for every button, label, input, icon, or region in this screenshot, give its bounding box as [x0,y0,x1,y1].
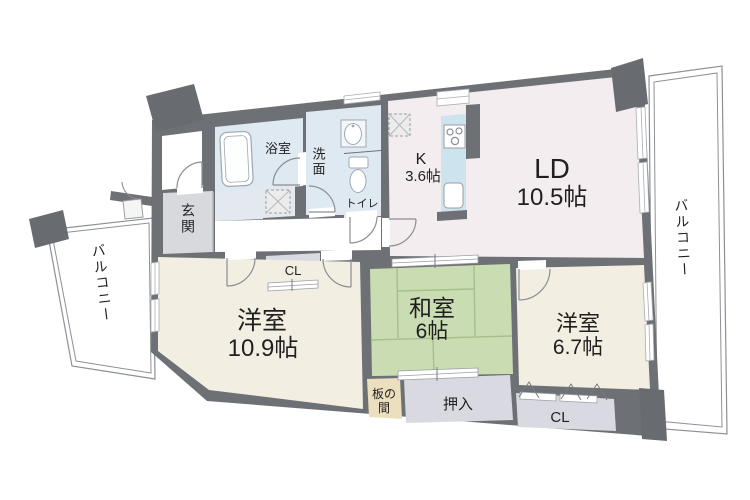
window-ld-right-2 [638,162,649,213]
ld-label: LD [534,153,570,184]
bath-door-opening [298,152,306,186]
toilet-label: トイレ [346,198,379,210]
western1-left-door-opening [225,250,256,260]
living-dining-kitchen-floor [388,75,644,258]
hallway-floor [215,217,381,252]
western2-size-label: 6.7帖 [553,336,603,359]
window-west2-right-2 [645,324,654,361]
washroom-label: 洗面 [311,147,326,177]
western1-right-door-opening [321,250,352,261]
pillar-bottom-right [639,388,667,441]
genkan-label: 玄関 [180,202,196,235]
window-ld-right-1 [636,107,647,159]
hallway-nook-floor [215,189,263,221]
kitchen-label: K [416,151,427,168]
oshiire-label: 押入 [443,396,473,413]
bath-label: 浴室 [265,141,291,156]
washer-pan-kitchen-icon [389,114,410,136]
window-west2-right-1 [643,282,653,321]
washbasin-icon [341,120,366,147]
kitchen-wall-stub [466,104,480,159]
window-west1-left-2 [151,299,159,332]
western2-closet-label: CL [550,409,569,426]
meter-box [123,199,143,219]
floorplan-svg: LD 10.5帖 K 3.6帖 洋室 10.9帖 和室 6帖 洋室 6.7帖 浴… [0,0,750,500]
ld-size-label: 10.5帖 [517,184,588,211]
ld-door-opening [382,218,390,247]
washer-pan-icon [266,190,290,213]
floorplan-canvas: LD 10.5帖 K 3.6帖 洋室 10.9帖 和室 6帖 洋室 6.7帖 浴… [0,0,750,500]
sink-icon [444,183,463,208]
toilet-icon [349,157,368,193]
japanese-room-size-label: 6帖 [416,320,449,343]
window-top-kitchen [437,89,469,106]
western2-door-opening [518,260,546,270]
itanoma-label-line2: 間 [378,401,390,415]
kitchen-size-label: 3.6帖 [405,168,441,185]
bathtub-icon [220,131,254,187]
itanoma-label-line1: 板の [372,387,396,401]
pillar-top-right [611,58,648,112]
window-west1-left-1 [151,262,159,295]
western1-size-label: 10.9帖 [228,335,299,362]
western1-label: 洋室 [237,307,287,335]
hall-closet-label: CL [285,263,302,278]
western2-label: 洋室 [556,311,600,336]
entrance-alcove [162,131,202,190]
japanese-room-label: 和室 [409,295,455,321]
